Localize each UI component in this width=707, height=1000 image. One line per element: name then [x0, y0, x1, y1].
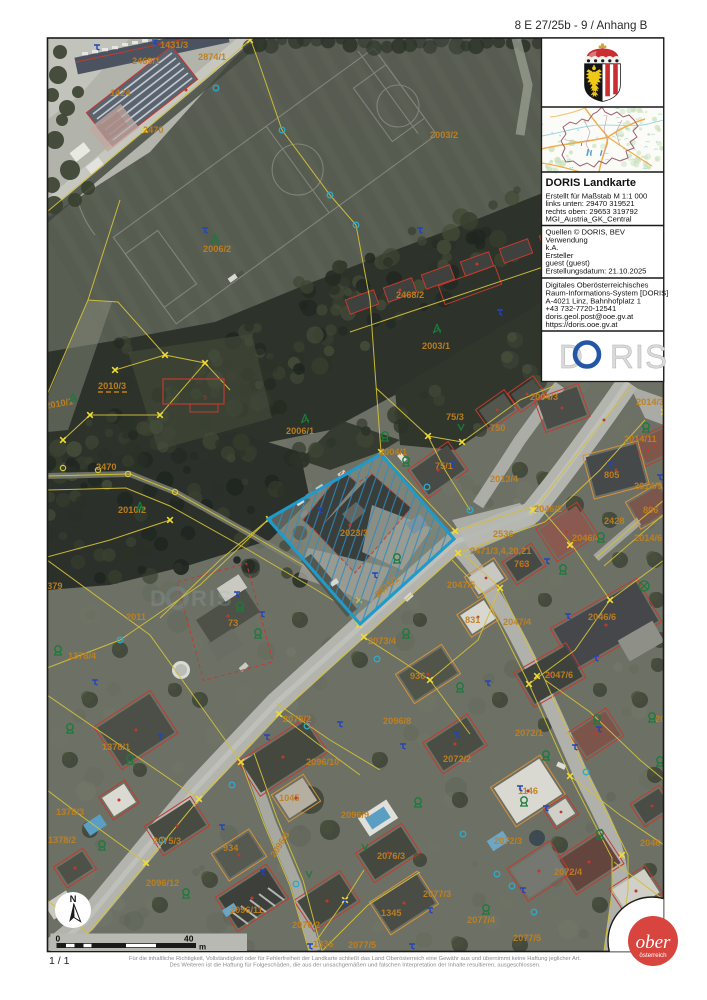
svg-text:1431/3: 1431/3 — [160, 40, 188, 50]
svg-text:2076/3: 2076/3 — [377, 851, 405, 861]
svg-text:2536: 2536 — [493, 529, 513, 539]
svg-text:2428: 2428 — [604, 516, 624, 526]
svg-text:2023/3: 2023/3 — [340, 528, 368, 538]
svg-text:2047/4: 2047/4 — [503, 617, 532, 627]
svg-text:2471/3,4,20,21: 2471/3,4,20,21 — [470, 546, 531, 556]
svg-text:2046/6: 2046/6 — [588, 612, 616, 622]
svg-text:2014/3: 2014/3 — [636, 397, 664, 407]
svg-text:2047/5: 2047/5 — [447, 580, 475, 590]
svg-text:750: 750 — [490, 423, 505, 433]
svg-text:D: D — [150, 586, 166, 611]
svg-text:2006/1: 2006/1 — [286, 426, 314, 436]
svg-text:2072/2: 2072/2 — [443, 754, 471, 764]
svg-text:1378/2: 1378/2 — [48, 835, 76, 845]
svg-text:8 E 27/25b - 9 / Anhang B: 8 E 27/25b - 9 / Anhang B — [515, 19, 648, 32]
svg-text:2010/3: 2010/3 — [98, 381, 126, 391]
svg-text:2004/1: 2004/1 — [379, 447, 407, 457]
svg-text:2014/11: 2014/11 — [624, 434, 657, 444]
svg-text:2096/9: 2096/9 — [341, 810, 369, 820]
svg-text:831: 831 — [465, 615, 480, 625]
svg-text:2468/2: 2468/2 — [396, 290, 424, 300]
svg-text:2072/3: 2072/3 — [494, 836, 522, 846]
svg-text:2469/1: 2469/1 — [132, 56, 160, 66]
svg-text:DORIS Landkarte: DORIS Landkarte — [546, 177, 636, 189]
svg-text:2096/8: 2096/8 — [383, 716, 411, 726]
svg-text:2077/3: 2077/3 — [423, 889, 451, 899]
svg-text:N: N — [70, 894, 77, 905]
svg-text:m: m — [199, 943, 206, 952]
svg-text:2096/11: 2096/11 — [230, 905, 263, 915]
svg-text:2470: 2470 — [143, 125, 163, 135]
svg-text:2006/2: 2006/2 — [203, 244, 231, 254]
svg-text:2046/4: 2046/4 — [572, 533, 601, 543]
svg-text:73: 73 — [228, 618, 238, 628]
svg-text:1345: 1345 — [381, 908, 401, 918]
svg-text:1378/1: 1378/1 — [102, 742, 130, 752]
svg-text:2045: 2045 — [655, 714, 675, 724]
svg-text:934: 934 — [223, 843, 239, 853]
svg-text:806: 806 — [643, 505, 658, 515]
svg-text:2076/2: 2076/2 — [292, 920, 320, 930]
svg-text:Für die inhaltliche Richtigkei: Für die inhaltliche Richtigkeit, Vollstä… — [129, 956, 581, 962]
svg-text:1 / 1: 1 / 1 — [49, 955, 70, 967]
svg-text:ober: ober — [636, 932, 671, 953]
svg-text:2072/1: 2072/1 — [515, 728, 543, 738]
svg-text:2096/12: 2096/12 — [146, 878, 179, 888]
svg-text:2077/4: 2077/4 — [467, 915, 496, 925]
svg-text:2011: 2011 — [126, 612, 146, 622]
svg-text:40: 40 — [184, 934, 194, 944]
svg-text:österreich: österreich — [639, 952, 667, 959]
svg-text:75/3: 75/3 — [446, 412, 464, 422]
svg-text:0: 0 — [56, 934, 61, 944]
svg-text:Des Weiteren ist die Haftung f: Des Weiteren ist die Haftung für Folgesc… — [169, 963, 541, 969]
svg-text:936: 936 — [410, 671, 425, 681]
svg-text:1379: 1379 — [42, 581, 62, 591]
svg-text:2004/3: 2004/3 — [530, 392, 558, 402]
svg-text:1378/3: 1378/3 — [56, 807, 84, 817]
svg-text:2077/5: 2077/5 — [513, 933, 541, 943]
svg-text:2075/2: 2075/2 — [283, 714, 311, 724]
svg-text:805: 805 — [604, 470, 619, 480]
svg-text:763: 763 — [514, 559, 529, 569]
svg-text:1336: 1336 — [313, 939, 333, 949]
svg-text:9: 9 — [203, 394, 207, 402]
svg-text:2073/4: 2073/4 — [368, 636, 397, 646]
svg-text:2014/9: 2014/9 — [634, 481, 662, 491]
svg-text:2072/4: 2072/4 — [554, 867, 583, 877]
svg-text:https://doris.ooe.gv.at: https://doris.ooe.gv.at — [546, 320, 619, 329]
svg-text:1424: 1424 — [110, 88, 131, 98]
svg-text:2077/5: 2077/5 — [348, 940, 376, 950]
svg-text:2003/1: 2003/1 — [422, 341, 450, 351]
svg-text:2075/3: 2075/3 — [153, 836, 181, 846]
svg-text:2874/1: 2874/1 — [198, 52, 226, 62]
svg-text:2013/4: 2013/4 — [490, 474, 519, 484]
svg-text:2046/2: 2046/2 — [534, 504, 562, 514]
svg-text:RIS: RIS — [191, 586, 234, 611]
svg-text:2470: 2470 — [96, 462, 116, 472]
svg-text:Erstellungsdatum: 21.10.2025: Erstellungsdatum: 21.10.2025 — [546, 267, 647, 276]
svg-text:2046: 2046 — [640, 838, 660, 848]
svg-text:MGI_Austria_GK_Central: MGI_Austria_GK_Central — [546, 215, 632, 224]
svg-text:2014/6: 2014/6 — [634, 533, 662, 543]
svg-text:1378/4: 1378/4 — [68, 651, 97, 661]
svg-text:2003/2: 2003/2 — [430, 130, 458, 140]
svg-text:RIS: RIS — [610, 338, 668, 375]
svg-text:2096/10: 2096/10 — [306, 757, 339, 767]
